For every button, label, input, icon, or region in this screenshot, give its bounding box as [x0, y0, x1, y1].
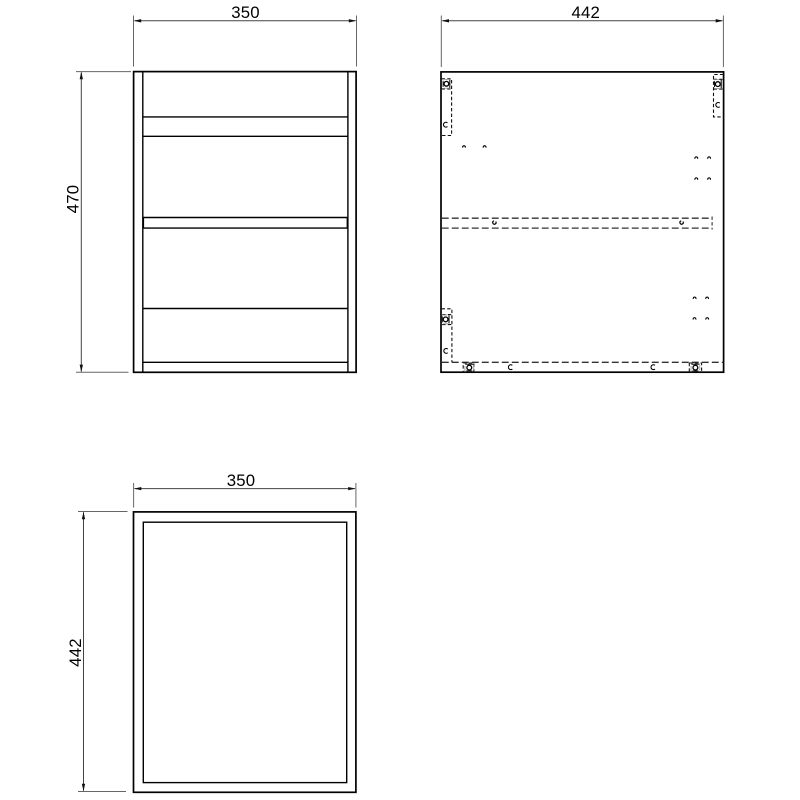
svg-text:442: 442 — [571, 3, 600, 22]
svg-text:350: 350 — [227, 471, 256, 490]
svg-text:442: 442 — [66, 638, 85, 667]
svg-text:350: 350 — [231, 3, 260, 22]
svg-text:470: 470 — [64, 185, 83, 214]
